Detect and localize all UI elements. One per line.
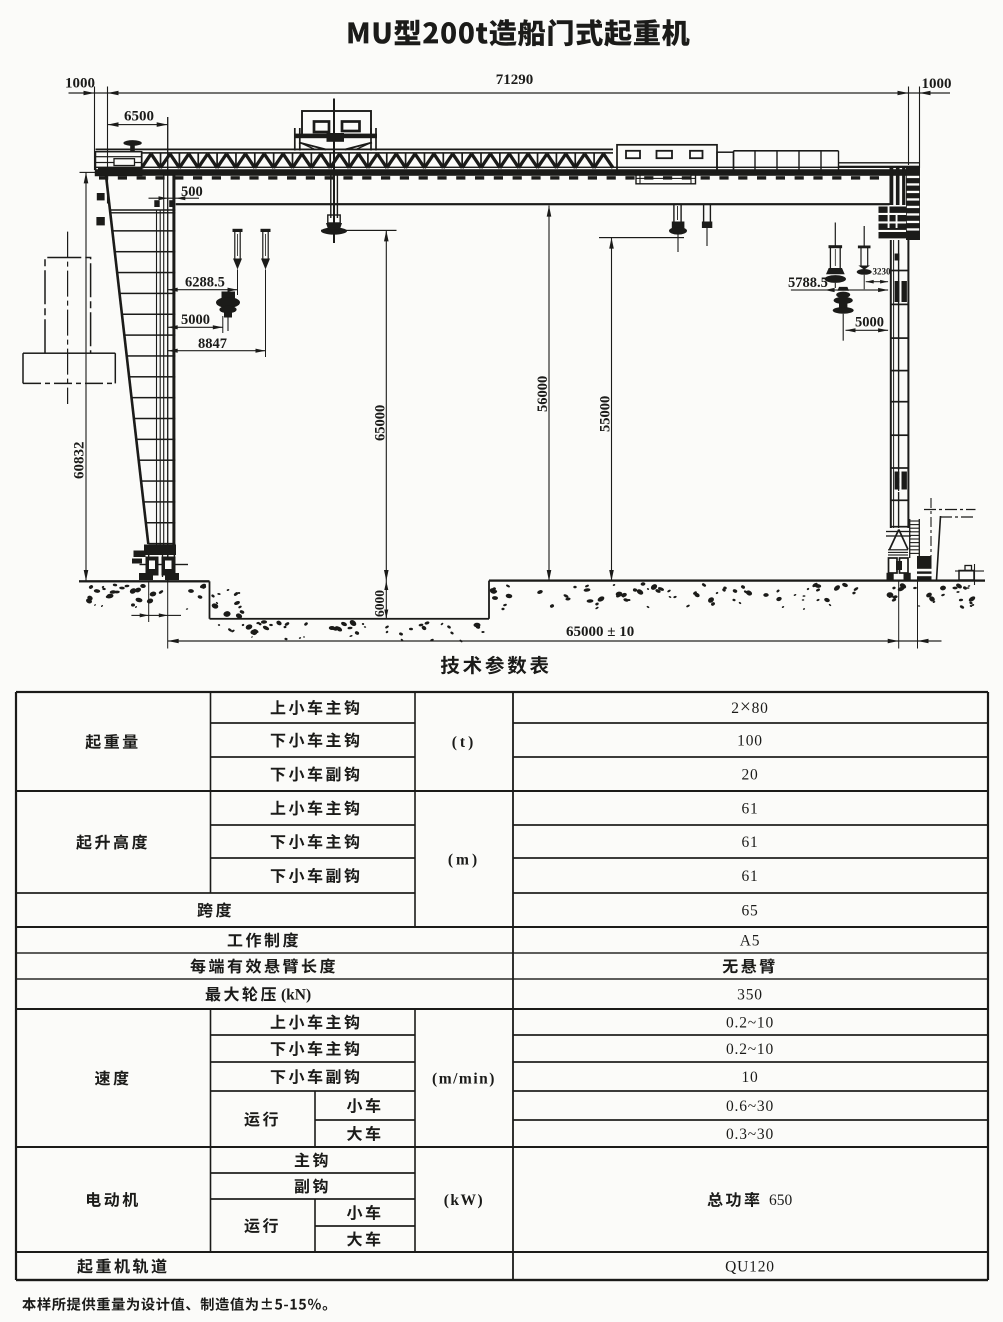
svg-text:A5: A5 (740, 932, 761, 949)
svg-text:20: 20 (741, 766, 758, 783)
svg-text:1000: 1000 (922, 76, 952, 92)
svg-text:(kW): (kW) (444, 1192, 484, 1209)
svg-text:6500: 6500 (124, 109, 154, 125)
svg-text:0.6~30: 0.6~30 (726, 1098, 774, 1115)
svg-text:6288.5: 6288.5 (185, 275, 225, 291)
svg-text:0.3~30: 0.3~30 (726, 1126, 774, 1143)
svg-text:1000: 1000 (65, 76, 95, 92)
svg-text:5000: 5000 (181, 312, 210, 328)
svg-text:8847: 8847 (198, 336, 227, 352)
svg-text:6000: 6000 (372, 590, 387, 617)
svg-text:100: 100 (737, 732, 763, 749)
svg-text:650: 650 (769, 1192, 793, 1209)
svg-text:QU120: QU120 (725, 1258, 775, 1275)
svg-text:(kN): (kN) (281, 986, 311, 1003)
svg-text:(t): (t) (452, 734, 477, 751)
svg-text:65000 ± 10: 65000 ± 10 (566, 624, 634, 640)
svg-text:500: 500 (181, 184, 203, 200)
svg-text:5000: 5000 (855, 315, 884, 331)
svg-text:65000: 65000 (372, 405, 388, 441)
svg-text:(m/min): (m/min) (432, 1070, 496, 1087)
svg-text:56000: 56000 (535, 376, 551, 412)
svg-text:71290: 71290 (496, 72, 534, 88)
svg-text:65: 65 (741, 902, 758, 919)
svg-text:350: 350 (737, 986, 763, 1003)
svg-text:55000: 55000 (597, 396, 613, 432)
svg-text:5788.5: 5788.5 (788, 275, 828, 291)
svg-text:61: 61 (741, 834, 758, 851)
svg-text:61: 61 (741, 868, 758, 885)
svg-text:2×80: 2×80 (731, 697, 768, 718)
svg-text:(m): (m) (448, 851, 480, 868)
svg-text:10: 10 (741, 1069, 758, 1086)
svg-text:0.2~10: 0.2~10 (726, 1014, 774, 1031)
svg-text:60832: 60832 (72, 442, 88, 480)
svg-text:0.2~10: 0.2~10 (726, 1041, 774, 1058)
svg-text:3230: 3230 (873, 267, 892, 277)
svg-text:61: 61 (741, 800, 758, 817)
